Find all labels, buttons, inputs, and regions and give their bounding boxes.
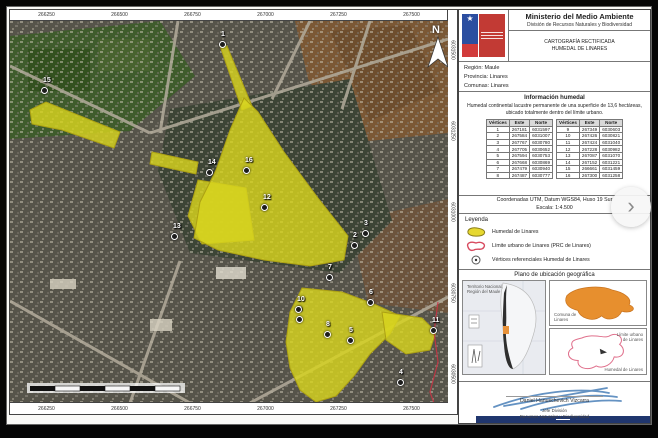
vertex-table-cell: 2 (486, 133, 509, 140)
vertex-table-cell: 267424 (579, 139, 599, 146)
vertex-marker-icon[interactable] (362, 230, 369, 237)
limite-minimap-label: Límite urbano de Linares (611, 332, 643, 342)
vertex-marker-label: 12 (263, 194, 271, 201)
signatory-division: Recursos Naturales y Biodiversidad (459, 414, 650, 420)
vertex-table-cell: 1 (486, 126, 509, 133)
vertex-table-row: 82674876030777 (486, 172, 552, 179)
vertex-table-row: 92673496030603 (557, 126, 623, 133)
vertex-table-cell: 6031459 (600, 166, 623, 173)
vertex-marker-icon[interactable] (347, 337, 354, 344)
vertex-marker-label: 16 (245, 157, 253, 164)
vertex-table-cell: 267767 (509, 139, 529, 146)
panel-header: ★ Ministerio del Medio Ambiente División… (459, 10, 650, 62)
vertex-table-cell: 6030753 (530, 152, 553, 159)
urban-limit-minimap: Límite urbano de Linares Humedal de Lina… (549, 328, 647, 375)
vertex-table-cell: 267479 (509, 166, 529, 173)
vertex-table-cell: 8 (486, 172, 509, 179)
document-type: CARTOGRAFÍA RECTIFICADA HUMEDAL DE LINAR… (509, 30, 650, 61)
wetland-info-section: Información humedal Humedal continental … (459, 92, 650, 196)
coordinate-tick-label: 6031250 (450, 121, 456, 140)
coordinate-tick-label: 6031000 (450, 202, 456, 221)
vertex-marker-icon[interactable] (296, 316, 303, 323)
coordinate-tick-label: 267000 (257, 12, 274, 18)
vertex-marker-label: 13 (173, 223, 181, 230)
division-subtitle: División de Recursos Naturales y Biodive… (509, 21, 650, 30)
vertex-table-cell: 6030940 (530, 166, 553, 173)
vertex-table-row: 22675846031007 (486, 133, 552, 140)
vertex-table-row: 32677676030780 (486, 139, 552, 146)
coordinate-tick-label: 266250 (38, 12, 55, 18)
vertex-table-cell: 6030780 (530, 139, 553, 146)
info-title: Información humedal (462, 95, 647, 101)
este-ticks-bottom: 266250266500266750267000267250267500 (10, 402, 448, 414)
vertex-marker-icon[interactable] (261, 204, 268, 211)
vertex-marker-label: 1 (221, 31, 225, 38)
legend-item-humedal: Humedal de Linares (465, 225, 644, 239)
legend-item-limite: Límite urbano de Linares (PRC de Linares… (465, 239, 644, 253)
vertex-table-cell: 267426 (579, 133, 599, 140)
vertex-table-cell: 267668 (509, 159, 529, 166)
vertex-table-cell: 6031258 (600, 172, 623, 179)
vertex-table-cell: 267228 (579, 146, 599, 153)
vertex-table-cell: 6030652 (530, 146, 553, 153)
vertex-table-cell: 267300 (579, 172, 599, 179)
vertex-table-cell: 267705 (509, 146, 529, 153)
wetland-swatch-icon (465, 226, 487, 238)
vertex-table-cell: 14 (557, 159, 580, 166)
vertex-table-cell: 267487 (509, 172, 529, 179)
vertex-marker-label: 8 (326, 321, 330, 328)
comunas-line: Comunas: Linares (464, 82, 645, 91)
vertex-marker-label: 6 (369, 289, 373, 296)
vertex-marker-icon[interactable] (324, 331, 331, 338)
vertex-table-row: 122672286030982 (557, 146, 623, 153)
vertex-table-row: 112674246031040 (557, 139, 623, 146)
vertex-table-cell: 16 (557, 172, 580, 179)
region-info: Región: Maule Provincia: Linares Comunas… (459, 62, 650, 92)
vertex-table-cell: 267594 (509, 152, 529, 159)
maule-highlight (503, 326, 509, 334)
vertex-table-row: 62676686030869 (486, 159, 552, 166)
vertex-table-cell: 6030777 (530, 172, 553, 179)
comuna-minimap: Comuna de Linares (549, 280, 647, 326)
vertex-table-cell: 267181 (509, 126, 529, 133)
vertex-marker-icon[interactable] (171, 233, 178, 240)
vertex-table-cell: 7 (486, 166, 509, 173)
vertex-table-row: 162673006031258 (557, 172, 623, 179)
vertex-marker-icon[interactable] (295, 306, 302, 313)
vertex-table-cell: 267349 (579, 126, 599, 133)
vertex-table-row: 42677056030652 (486, 146, 552, 153)
ministry-title: Ministerio del Medio Ambiente (509, 10, 650, 21)
location-section: Plano de ubicación geográfica (459, 270, 650, 382)
coordinate-tick-label: 266750 (184, 12, 201, 18)
vertex-marker-icon[interactable] (243, 167, 250, 174)
chile-map-graphic (463, 281, 546, 374)
vertex-table-cell: 13 (557, 152, 580, 159)
vertex-table-cell: 10 (557, 133, 580, 140)
urban-limit-swatch-icon (465, 240, 487, 252)
provincia-line: Provincia: Linares (464, 73, 645, 82)
vertex-table-cell: 6030869 (530, 159, 553, 166)
vertex-table-row: 152666616031459 (557, 166, 623, 173)
vertex-marker-icon[interactable] (351, 242, 358, 249)
vertex-table-row: 142671526031221 (557, 159, 623, 166)
vertex-table-row: 72674796030940 (486, 166, 552, 173)
vertex-table-cell: 15 (557, 166, 580, 173)
vertex-table-cell: 9 (557, 126, 580, 133)
coordinate-tick-label: 267000 (257, 406, 274, 412)
coordinate-tick-label: 267250 (330, 12, 347, 18)
norte-ticks-right: 60315006031250603100060307506030500 (447, 10, 457, 414)
vertex-marker-label: 3 (364, 220, 368, 227)
vertex-table-cell: 6031040 (600, 139, 623, 146)
vertex-marker-label: 10 (297, 296, 305, 303)
vertex-table-row: 102674266030821 (557, 133, 623, 140)
vertex-table-cell: 267087 (579, 152, 599, 159)
humedal-minimap-label: Humedal de Linares (605, 367, 643, 372)
vertex-marker-label: 14 (208, 159, 216, 166)
vertex-marker-label: 11 (432, 317, 439, 324)
coordinate-tick-label: 6030750 (450, 283, 456, 302)
satellite-imagery: N (10, 21, 448, 403)
vertex-table-cell: 6031597 (530, 126, 553, 133)
vertex-table-row: 52675946030753 (486, 152, 552, 159)
vertex-table-cell: 3 (486, 139, 509, 146)
vertex-table-row: 12671816031597 (486, 126, 552, 133)
next-image-button[interactable]: › (611, 187, 651, 227)
vertex-table-cell: 267152 (579, 159, 599, 166)
vertex-marker-icon[interactable] (326, 274, 333, 281)
ministry-logo-icon: ★ (459, 10, 509, 61)
vertex-table-cell: 267584 (509, 133, 529, 140)
vertex-marker-icon[interactable] (41, 87, 48, 94)
vertex-table-cell: 6031070 (600, 152, 623, 159)
info-description: Humedal continental lacustre permanente … (466, 103, 643, 116)
este-ticks-top: 266250266500266750267000267250267500 (10, 10, 448, 21)
vertex-table-cell: 5 (486, 152, 509, 159)
coordinate-tick-label: 266500 (111, 406, 128, 412)
vertex-table-cell: 266661 (579, 166, 599, 173)
map-document: 266250266500266750267000267250267500 603… (6, 6, 652, 425)
vertex-marker-icon[interactable] (430, 327, 437, 334)
vertex-table-cell: 6030603 (600, 126, 623, 133)
coordinate-tick-label: 267500 (403, 12, 420, 18)
vertex-marker-label: 2 (353, 232, 357, 239)
coordinate-tick-label: 6030500 (450, 364, 456, 383)
legend-item-vertices: Vértices referenciales Humedal de Linare… (465, 253, 644, 267)
vertex-table-cell: 6030821 (600, 133, 623, 140)
vertex-table-cell: 6031221 (600, 159, 623, 166)
signature-section: Daniel Hanuschevich Vizcarra Jefe Divisi… (459, 382, 650, 423)
chile-minimap: Territorio Nacional, Región del Maule (462, 280, 546, 375)
vertex-marker-label: 4 (399, 369, 403, 376)
signatory-name: Daniel Hanuschevich Vizcarra (506, 396, 603, 405)
coordinate-tick-label: 266500 (111, 12, 128, 18)
coordinate-tick-label: 6031500 (450, 41, 456, 60)
vertex-marker-icon[interactable] (206, 169, 213, 176)
vertex-table-row: 132670876031070 (557, 152, 623, 159)
vertex-table-cell: 6031007 (530, 133, 553, 140)
vertex-swatch-icon (465, 254, 487, 266)
vertex-marker-icon[interactable] (397, 379, 404, 386)
coordinate-tick-label: 266750 (184, 406, 201, 412)
vertex-table-cell: 12 (557, 146, 580, 153)
coordinate-tick-label: 267250 (330, 406, 347, 412)
coordinate-tick-label: 266250 (38, 406, 55, 412)
satellite-map[interactable]: N 12345678910111213141516 (10, 21, 448, 403)
vertex-table-cell: 6030982 (600, 146, 623, 153)
vertex-marker-label: 7 (328, 264, 332, 271)
image-viewer: 266250266500266750267000267250267500 603… (0, 0, 658, 438)
chevron-right-icon: › (627, 195, 634, 217)
vertex-marker-icon[interactable] (219, 41, 226, 48)
vertex-marker-label: 15 (43, 77, 51, 84)
region-line: Región: Maule (464, 64, 645, 73)
vertex-table-cell: 6 (486, 159, 509, 166)
vertex-table-right: Vértices Este Norte 92673496030603102674… (556, 119, 623, 179)
vertex-table-cell: 4 (486, 146, 509, 153)
scale-bar (27, 383, 185, 393)
map-frame: 266250266500266750267000267250267500 603… (9, 9, 458, 415)
vertex-marker-label: 5 (349, 327, 353, 334)
coordinate-tick-label: 267500 (403, 406, 420, 412)
location-title: Plano de ubicación geográfica (462, 272, 647, 278)
vertex-table-cell: 11 (557, 139, 580, 146)
humedal-pointer-icon (600, 349, 607, 354)
vertex-marker-icon[interactable] (367, 299, 374, 306)
vertex-table-left: Vértices Este Norte 12671816031597226758… (486, 119, 553, 179)
svg-text:N: N (432, 24, 440, 36)
